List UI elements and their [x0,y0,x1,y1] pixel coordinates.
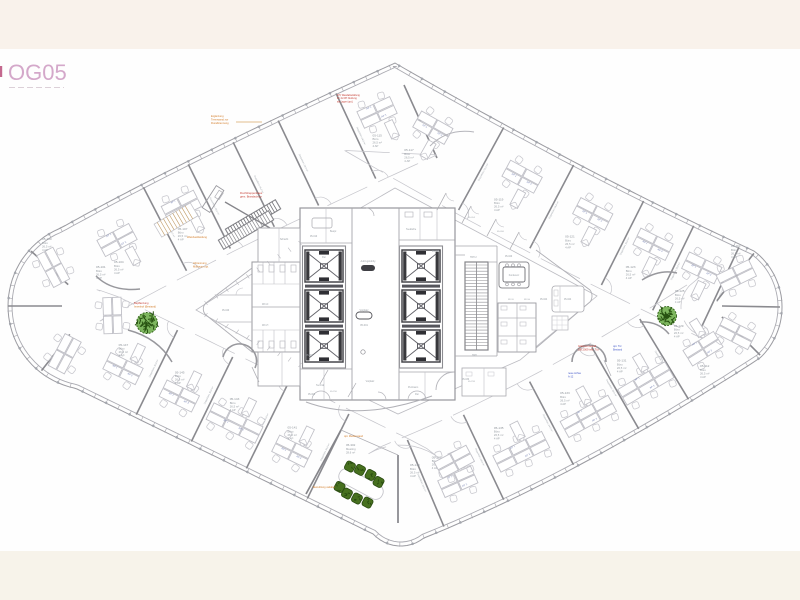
svg-text:05-030: 05-030 [462,379,470,381]
svg-text:A-12: A-12 [568,376,574,379]
svg-text:05-024: 05-024 [564,299,572,301]
svg-text:4 AP: 4 AP [119,354,125,358]
svg-text:05-014: 05-014 [468,217,476,219]
svg-text:Ergänzung: Ergänzung [211,114,224,118]
svg-text:4 AP: 4 AP [617,369,623,373]
svg-text:4 AP: 4 AP [373,144,379,148]
svg-text:WC-D: WC-D [508,299,514,301]
svg-text:4 AP: 4 AP [404,159,410,163]
svg-text:05-210: 05-210 [330,391,338,393]
svg-text:opt. Medienwand: opt. Medienwand [344,435,364,438]
svg-text:Vorplatz: Vorplatz [366,380,375,383]
svg-text:TRH 2: TRH 2 [470,257,477,259]
svg-text:4 AP: 4 AP [674,335,680,339]
svg-text:4 AP: 4 AP [626,276,632,280]
svg-text:Müllraum opt.: Müllraum opt. [193,264,209,268]
svg-text:TRH: TRH [472,355,477,357]
svg-text:05-006: 05-006 [308,394,316,396]
svg-text:WC-D: WC-D [262,304,269,306]
svg-text:05-020: 05-020 [505,256,513,258]
svg-text:4 AP: 4 AP [114,271,120,275]
svg-text:Flurabtrennung: Flurabtrennung [211,121,229,125]
svg-text:4 AP: 4 AP [494,437,500,441]
svg-text:Konferenz: Konferenz [509,274,520,277]
svg-text:05-040: 05-040 [222,310,230,312]
svg-text:Bespr.: Bespr. [330,230,337,233]
svg-text:Flur: Flur [322,256,326,259]
svg-text:Bepflanzung: Bepflanzung [134,301,149,305]
svg-text:05-001: 05-001 [360,324,368,327]
svg-text:als Lager (opt.): als Lager (opt.) [337,100,353,103]
svg-text:Bestand: Bestand [613,349,623,352]
svg-text:05-024: 05-024 [540,299,548,301]
svg-text:4 AP: 4 AP [178,238,184,242]
svg-text:4 AP: 4 AP [731,255,737,259]
svg-text:05-016: 05-016 [497,231,505,233]
svg-text:Innenhof (Bestand): Innenhof (Bestand) [134,304,156,308]
svg-text:05-010: 05-010 [310,236,318,238]
svg-text:05-218: 05-218 [468,381,476,383]
svg-text:Trennwand zur: Trennwand zur [211,117,228,121]
svg-text:4 AP: 4 AP [494,208,500,212]
svg-text:DB 2009 inkl. Tür: DB 2009 inkl. Tür [578,348,599,352]
svg-text:05-008: 05-008 [306,355,314,357]
svg-text:Vorplatz: Vorplatz [359,309,369,312]
svg-text:4 AP: 4 AP [700,375,706,379]
svg-text:4 AP: 4 AP [230,408,236,412]
svg-text:28,6 m²: 28,6 m² [346,450,355,454]
svg-text:Aufzugslobby: Aufzugslobby [360,260,376,263]
svg-text:Putzraum: Putzraum [408,386,418,389]
svg-text:05-302: 05-302 [346,443,356,447]
svg-text:4 AP: 4 AP [175,381,181,385]
svg-text:4 AP: 4 AP [288,436,294,440]
svg-text:Technik: Technik [316,384,325,387]
svg-text:05-015: 05-015 [432,251,440,253]
svg-text:Abtrennung: Abtrennung [193,261,207,265]
svg-text:Teeküche: Teeküche [406,228,417,231]
svg-text:Meeting: Meeting [346,447,356,451]
svg-text:Glastrennwand: Glastrennwand [578,344,597,348]
svg-text:WC-H: WC-H [262,325,269,327]
svg-text:Schacht: Schacht [280,238,289,241]
svg-text:4 AP: 4 AP [42,248,48,252]
svg-text:OG05: OG05 [8,60,67,85]
svg-text:4 AP: 4 AP [565,246,571,250]
svg-text:gem. Brandschutz: gem. Brandschutz [240,195,262,199]
svg-text:4 AP: 4 AP [560,402,566,406]
svg-text:WC-H: WC-H [524,299,530,301]
svg-text:4 AP: 4 AP [675,300,681,304]
svg-text:Wandverkleidung: Wandverkleidung [187,235,208,239]
svg-text:Bestuhlung variabel: Bestuhlung variabel [313,486,335,489]
svg-text:Fluchttreppenhaus: Fluchttreppenhaus [240,191,263,195]
svg-text:4 AP: 4 AP [410,474,416,478]
svg-text:Flur: Flur [415,393,419,396]
